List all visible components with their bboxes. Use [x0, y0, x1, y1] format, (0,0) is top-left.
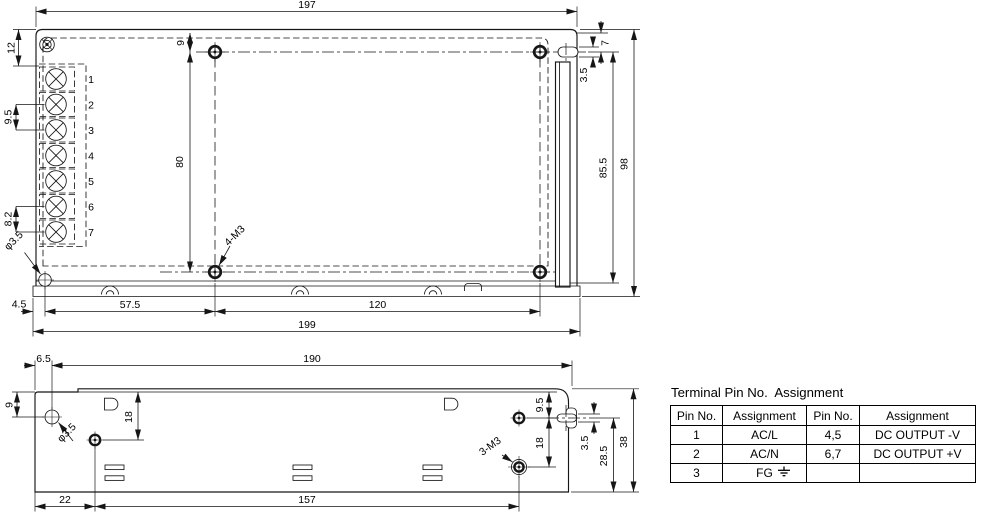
terminal-pin-table: Terminal Pin No. Assignment Pin No. Assi…: [670, 385, 982, 483]
dimension-120: 120: [215, 283, 540, 317]
pin-number-label: 6: [88, 201, 94, 213]
vent-slots: [105, 465, 442, 480]
vent-louver: [102, 286, 119, 295]
side-hole-3m3: [508, 456, 530, 478]
hole-callout-label: 4-M3: [222, 223, 248, 249]
keyhole-slot: [558, 43, 578, 61]
leader-4-m3: 4-M3: [219, 223, 248, 265]
pin-number-label: 2: [88, 99, 94, 111]
vent-hook: [465, 284, 482, 292]
dimension-190: 190: [52, 353, 572, 386]
assignment-cell: AC/N: [723, 445, 807, 464]
fg-label: FG: [756, 466, 773, 480]
corner-rivet: [40, 37, 55, 52]
pin-no-cell: 6,7: [807, 445, 860, 464]
dim-label: 8.2: [3, 212, 15, 227]
dim-label: 190: [303, 353, 321, 365]
dimension-80: 80: [174, 52, 190, 272]
pin-no-cell: 4,5: [807, 426, 860, 445]
pin-no-cell: [807, 464, 860, 483]
dim-label: 28.5: [598, 446, 610, 467]
pin-number-label: 5: [88, 176, 94, 188]
dimension-3p5-slot: 3.5: [578, 37, 599, 82]
earth-ground-icon: [777, 466, 791, 477]
dimension-22: 22: [35, 447, 95, 512]
d-hole: [105, 398, 118, 410]
leader-3-m3: 3-M3: [477, 435, 512, 462]
assignment-cell: DC OUTPUT -V: [860, 426, 976, 445]
dim-label: 57.5: [120, 299, 141, 311]
side-corner-hole-3p5: [42, 407, 62, 427]
case-outline: [36, 30, 577, 287]
pin-table-row: 3 FG: [671, 464, 976, 483]
dim-label: 6.5: [36, 353, 51, 365]
dim-label: 85.5: [598, 158, 610, 179]
dimension-9-left: 9: [4, 392, 45, 417]
dimension-8p2: 8.2: [3, 207, 45, 233]
side-hole-m3: [87, 432, 104, 449]
cover-dashed-outline: [43, 38, 548, 266]
hole-callout-label: φ3.5: [2, 229, 26, 253]
pin-table-row: 2 AC/N 6,7 DC OUTPUT +V: [671, 445, 976, 464]
pin-number-label: 4: [88, 150, 94, 162]
d-hole: [445, 398, 458, 410]
pin-number-label: 1: [88, 74, 94, 86]
dim-label: 12: [6, 42, 18, 54]
mounting-hole-m3: [530, 262, 550, 282]
mechanical-drawing-page: 1 2 3 4: [0, 0, 991, 518]
hole-callout-label: 3-M3: [477, 435, 504, 459]
dim-label: 38: [618, 436, 630, 448]
hole-callout-label: φ3.5: [55, 421, 79, 445]
assignment-cell: DC OUTPUT +V: [860, 445, 976, 464]
assignment-cell: [860, 464, 976, 483]
vent-louver: [292, 286, 309, 295]
dimension-9p5-right: 9.5: [527, 392, 556, 418]
col-header-assignment: Assignment: [860, 406, 976, 426]
dimension-7: 7: [577, 21, 612, 64]
dim-label: 9.5: [3, 110, 15, 125]
dim-label: 9.5: [534, 398, 546, 413]
top-view-drawing: 1 2 3 4: [0, 0, 660, 348]
pin-number-label: 3: [88, 125, 94, 137]
col-header-assignment: Assignment: [723, 406, 807, 426]
pin-no-cell: 2: [671, 445, 723, 464]
dim-label: 9: [175, 40, 187, 46]
mounting-hole-m3: [530, 42, 550, 62]
dimension-157: 157: [95, 476, 519, 512]
pin-no-cell: 3: [671, 464, 723, 483]
dimension-18-right: 18: [528, 418, 556, 467]
assignment-cell: AC/L: [723, 426, 807, 445]
dim-label: 3.5: [579, 436, 591, 451]
side-view-drawing: 6.5 190 9 18 φ3.5 22: [0, 350, 680, 518]
leader-dia-3p5-side: φ3.5: [55, 421, 79, 445]
dimension-width-197: 197: [36, 0, 577, 27]
pin-table-title: Terminal Pin No. Assignment: [671, 385, 982, 400]
assignment-cell: FG: [723, 464, 807, 483]
dimension-width-199: 199: [33, 298, 580, 337]
dim-label: 7: [600, 40, 612, 46]
dim-label: 157: [298, 494, 316, 506]
pin-no-cell: 1: [671, 426, 723, 445]
pin-table-row: 1 AC/L 4,5 DC OUTPUT -V: [671, 426, 976, 445]
dimension-3p5-side: 3.5: [578, 402, 600, 450]
right-rail: [556, 62, 571, 287]
dim-label: 9: [4, 402, 16, 408]
dim-label: 80: [174, 156, 186, 168]
pin-table-header-row: Pin No. Assignment Pin No. Assignment: [671, 406, 976, 426]
dim-label: 22: [59, 494, 71, 506]
side-hole-m3: [511, 410, 528, 427]
col-header-pin-no: Pin No.: [671, 406, 723, 426]
dim-label: 18: [123, 411, 135, 423]
dimension-57p5: 57.5: [45, 283, 215, 317]
dim-label: 4.5: [12, 299, 27, 311]
dim-label: 120: [369, 299, 387, 311]
dimension-9-top: 9: [175, 33, 190, 52]
dim-label: 98: [619, 158, 631, 170]
pin-number-label: 7: [88, 227, 94, 239]
dim-label: 3.5: [578, 68, 590, 83]
dim-label: 18: [534, 437, 546, 449]
dimension-6p5: 6.5: [24, 353, 63, 409]
dim-label: 199: [298, 319, 316, 331]
dimension-9p5: 9.5: [3, 105, 45, 131]
dimension-12: 12: [6, 30, 40, 67]
dimension-18-left: 18: [103, 392, 144, 440]
vent-louver: [425, 286, 442, 295]
mounting-hole-m3: [205, 262, 225, 282]
dimension-28p5: 28.5: [571, 418, 639, 492]
mounting-hole-m3: [205, 42, 225, 62]
dimension-4p5: 4.5: [12, 299, 33, 312]
dim-label: 197: [298, 0, 316, 11]
terminal-block: 1 2 3 4: [39, 64, 94, 247]
leader-dia-3p5: φ3.5: [2, 229, 40, 274]
col-header-pin-no: Pin No.: [807, 406, 860, 426]
